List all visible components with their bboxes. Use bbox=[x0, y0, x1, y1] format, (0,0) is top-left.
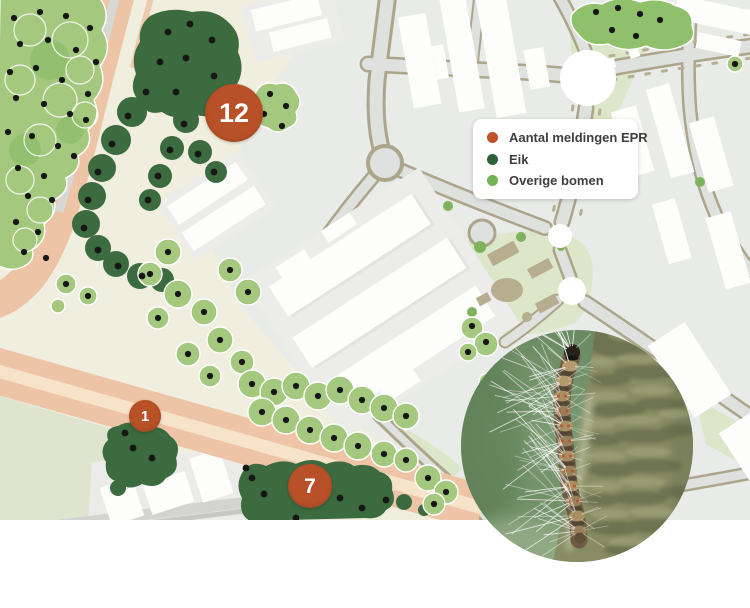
legend-label-overige: Overige bomen bbox=[509, 173, 604, 188]
roundabout bbox=[560, 50, 616, 106]
legend: Aantal meldingen EPR Eik Overige bomen bbox=[473, 119, 638, 199]
roundabout bbox=[558, 277, 586, 305]
legend-item-epr: Aantal meldingen EPR bbox=[487, 127, 628, 148]
roundabout bbox=[548, 224, 572, 248]
map-infographic: Aantal meldingen EPR Eik Overige bomen 1… bbox=[0, 0, 750, 608]
legend-item-overige: Overige bomen bbox=[487, 170, 628, 191]
epr-marker[interactable]: 7 bbox=[288, 464, 332, 508]
map bbox=[0, 0, 750, 608]
legend-item-eik: Eik bbox=[487, 149, 628, 170]
epr-dot-icon bbox=[487, 132, 498, 143]
overige-dot-icon bbox=[487, 175, 498, 186]
legend-label-eik: Eik bbox=[509, 152, 529, 167]
legend-label-epr: Aantal meldingen EPR bbox=[509, 130, 648, 145]
eik-dot-icon bbox=[487, 154, 498, 165]
epr-marker[interactable]: 12 bbox=[205, 84, 263, 142]
epr-marker[interactable]: 1 bbox=[129, 400, 161, 432]
